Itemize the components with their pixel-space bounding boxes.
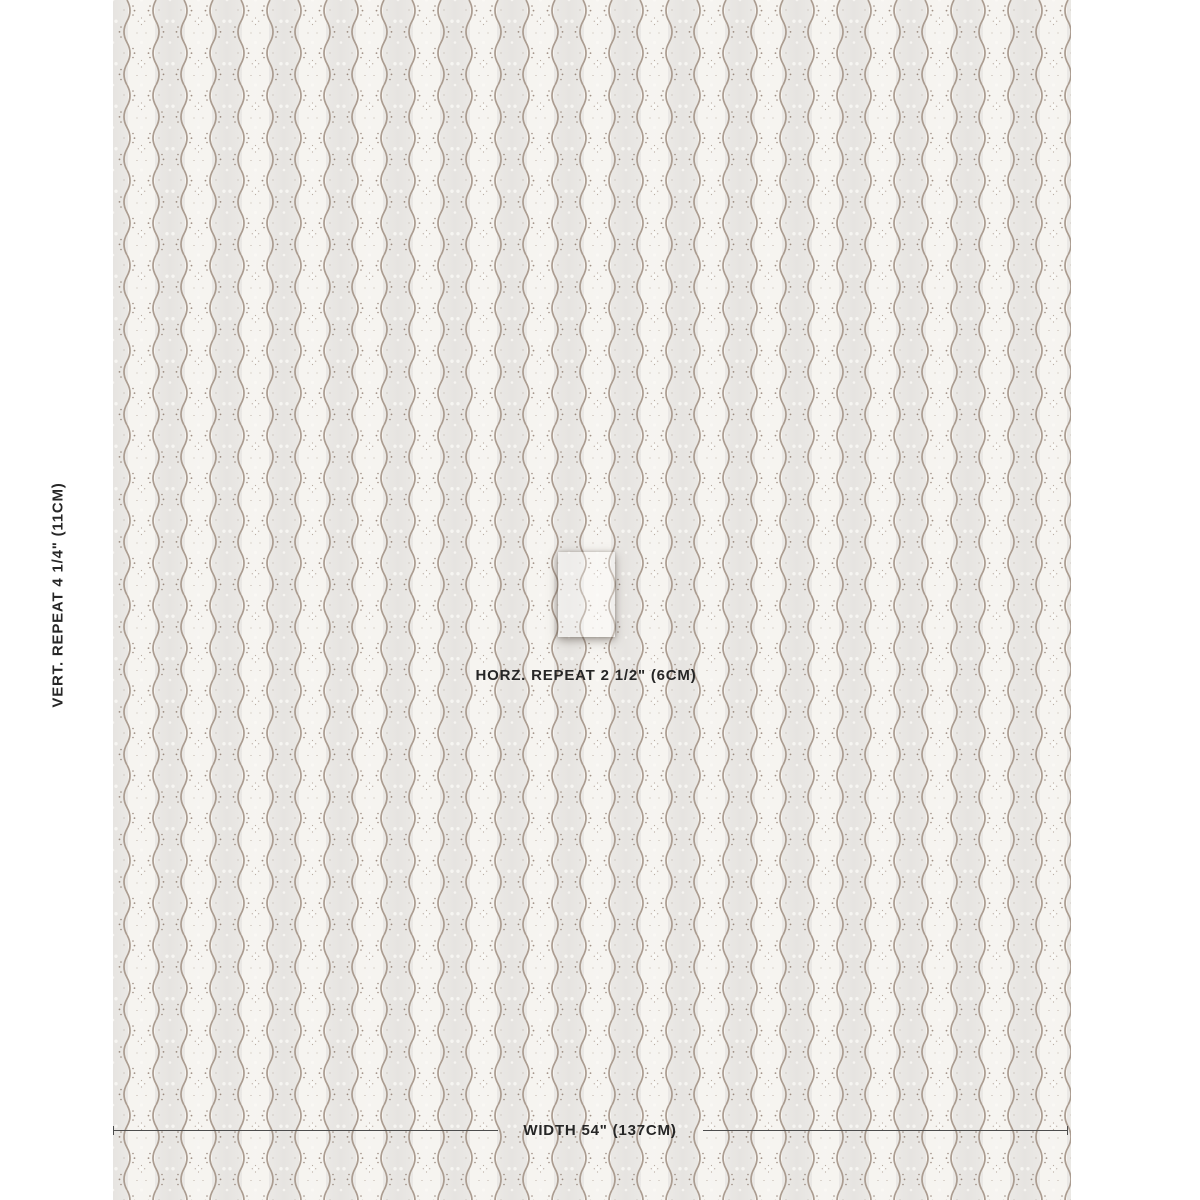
width-label: WIDTH 54" (137CM): [523, 1122, 676, 1139]
width-dimension-line-right: [703, 1130, 1068, 1131]
vertical-repeat-label: VERT. REPEAT 4 1/4" (11CM): [50, 482, 67, 707]
width-dimension-tick-right: [1067, 1126, 1068, 1135]
width-dimension-line-left: [113, 1130, 498, 1131]
horizontal-repeat-highlight: [558, 552, 615, 637]
horizontal-repeat-label: HORZ. REPEAT 2 1/2" (6CM): [475, 667, 696, 684]
product-dimension-diagram: VERT. REPEAT 4 1/4" (11CM) HORZ. REPEAT …: [0, 0, 1200, 1200]
